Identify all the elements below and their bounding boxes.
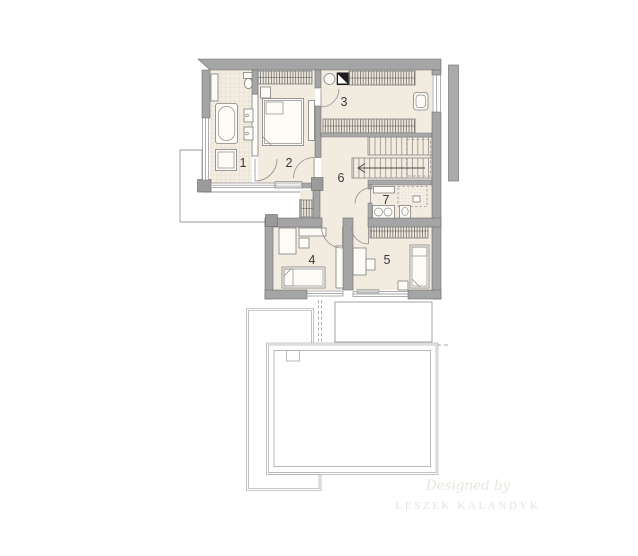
right-wall [432, 112, 441, 299]
stool-icon [414, 93, 429, 111]
toilet-icon [400, 206, 411, 219]
shower-icon [398, 187, 427, 207]
desk-icon [279, 228, 296, 254]
single-bed-icon [410, 245, 429, 288]
watermark: Designed by LESZEK KALANDYK [395, 478, 540, 512]
wall-post [266, 215, 278, 227]
floor-plan-canvas: 1 2 3 4 5 6 7 Designed by LESZEK KALANDY… [0, 0, 638, 556]
window [203, 118, 209, 180]
room-label-5: 5 [384, 253, 391, 267]
detached-wall-screen [449, 65, 459, 181]
watermark-line2: LESZEK KALANDYK [395, 500, 540, 512]
room-label-1: 1 [240, 156, 247, 170]
chimney-outline [287, 351, 300, 362]
desk-icon [353, 248, 366, 275]
balcony-door-threshold [353, 290, 408, 297]
nightstand-icon [398, 281, 408, 290]
chair-icon [366, 259, 375, 270]
bathtub-icon [216, 104, 238, 144]
shower-icon [216, 150, 237, 171]
laundry-sink-icon [337, 73, 349, 85]
window [433, 75, 441, 112]
room-label-4: 4 [309, 253, 316, 267]
left-wall [202, 70, 210, 118]
double-sink-icon [373, 206, 395, 219]
floor-plan-svg: 1 2 3 4 5 6 7 Designed by LESZEK KALANDY… [0, 0, 638, 556]
room-label-7: 7 [383, 193, 390, 207]
room-label-6: 6 [338, 171, 345, 185]
wall-post [198, 180, 212, 193]
window [307, 291, 343, 296]
room-label-3: 3 [341, 95, 348, 109]
chair-icon [299, 238, 309, 248]
wall-post [312, 178, 324, 191]
cabinet-icon [261, 87, 271, 98]
window [211, 183, 275, 188]
washing-machine-icon [324, 74, 335, 85]
radiator-icon [211, 74, 218, 101]
balcony [335, 302, 432, 342]
terrace-door-threshold [275, 182, 302, 189]
room-label-2: 2 [286, 156, 293, 170]
tall-cabinet-icon [309, 101, 315, 141]
lower-level-outline [248, 300, 451, 490]
watermark-line1: Designed by [425, 478, 511, 494]
single-bed-icon [282, 267, 325, 288]
top-wall [198, 59, 441, 70]
double-bed-icon [263, 99, 304, 146]
